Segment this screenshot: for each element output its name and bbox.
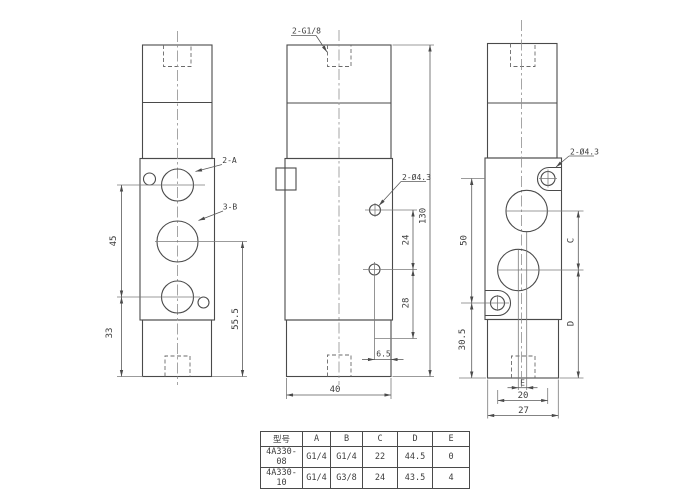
dim-base-width: 40 (287, 385, 392, 395)
dim-port-spacing: 45 (109, 185, 122, 297)
dim-text-20: 20 (518, 391, 529, 401)
dim-hole-offset: 6.5 (362, 350, 404, 360)
dim-text-130: 130 (419, 208, 429, 224)
extension-lines-front (117, 185, 247, 377)
dim-text-33: 33 (105, 328, 115, 339)
dim-hole-spacing: 24 (402, 210, 414, 270)
dim-hole-spacing-h: 20 (498, 391, 548, 401)
dim-text-28: 28 (402, 298, 412, 309)
dim-e: E (508, 379, 538, 388)
drawing-canvas: 45 33 55.5 2-A 3-B (0, 0, 693, 497)
spec-cell-a: G1/4 (303, 468, 331, 489)
mounting-holes-label: 2-Ø4.3 (402, 172, 431, 182)
port-a-label: 2-A (222, 156, 237, 165)
dim-text-6-5: 6.5 (376, 350, 391, 359)
mounting-holes-rear-label: 2-Ø4.3 (570, 147, 599, 157)
spec-header-c: C (363, 432, 398, 447)
port-b-label: 3-B (223, 203, 238, 212)
dim-base-width-rear: 27 (488, 406, 559, 416)
spec-header-a: A (303, 432, 331, 447)
dim-c: C (567, 211, 579, 270)
top-ports-label: 2-G1/8 (292, 27, 321, 36)
extension-lines-side (287, 45, 435, 399)
label-port-b: 3-B (199, 203, 238, 221)
label-mounting-holes: 2-Ø4.3 (379, 172, 431, 206)
label-mounting-holes-rear: 2-Ø4.3 (556, 147, 599, 168)
spec-cell-b: G1/4 (331, 447, 363, 468)
front-view: 45 33 55.5 2-A 3-B (105, 31, 247, 385)
label-top-ports: 2-G1/8 (291, 27, 327, 53)
dim-hole-span: 50 (460, 179, 472, 304)
spec-header-e: E (433, 432, 470, 447)
dim-text-45: 45 (109, 236, 119, 247)
spec-cell-b: G3/8 (331, 468, 363, 489)
spec-cell-model: 4A330-10 (261, 468, 303, 489)
manual-override-tab (276, 168, 296, 190)
side-view: 24 28 6.5 40 130 2-G1/8 2-Ø4.3 (276, 27, 434, 400)
dim-text-55-5: 55.5 (231, 308, 241, 330)
dim-total-height: 130 (419, 45, 431, 377)
dim-text-d: D (567, 321, 577, 326)
rear-view: 50 30.5 C D E 20 27 2-Ø4.3 (458, 20, 599, 419)
dim-text-40: 40 (330, 385, 341, 395)
dim-base-height: 30.5 (458, 303, 472, 378)
spec-cell-d: 43.5 (398, 468, 433, 489)
spec-cell-model: 4A330-08 (261, 447, 303, 468)
dim-text-50: 50 (460, 235, 470, 246)
spec-row-4a330-08: 4A330-08 G1/4 G1/4 22 44.5 0 (261, 447, 470, 468)
dim-text-27: 27 (518, 406, 529, 416)
spec-row-4a330-10: 4A330-10 G1/4 G3/8 24 43.5 4 (261, 468, 470, 489)
spec-cell-e: 4 (433, 468, 470, 489)
spec-header-model: 型号 (261, 432, 303, 447)
spec-cell-a: G1/4 (303, 447, 331, 468)
dim-text-24: 24 (402, 235, 412, 246)
hidden-top-port (511, 44, 536, 67)
spec-cell-d: 44.5 (398, 447, 433, 468)
spec-cell-e: 0 (433, 447, 470, 468)
dim-body-height: 55.5 (231, 242, 243, 377)
dim-port-to-base: 33 (105, 297, 122, 377)
pilot-hole-icon (144, 173, 156, 185)
dim-text-e: E (520, 379, 525, 388)
spec-header-b: B (331, 432, 363, 447)
pilot-hole-2-icon (198, 297, 209, 308)
spec-cell-c: 22 (363, 447, 398, 468)
valve-technical-drawing: 45 33 55.5 2-A 3-B (0, 0, 693, 497)
spec-table: 型号 A B C D E 4A330-08 G1/4 G1/4 22 44.5 … (260, 431, 470, 489)
spec-header-row: 型号 A B C D E (261, 432, 470, 447)
dim-text-c: C (567, 238, 577, 243)
dim-text-30-5: 30.5 (458, 329, 468, 351)
spec-header-d: D (398, 432, 433, 447)
dim-hole-to-base: 28 (402, 270, 414, 339)
hidden-bottom-port (512, 356, 536, 378)
spec-cell-c: 24 (363, 468, 398, 489)
dim-d: D (567, 270, 579, 378)
